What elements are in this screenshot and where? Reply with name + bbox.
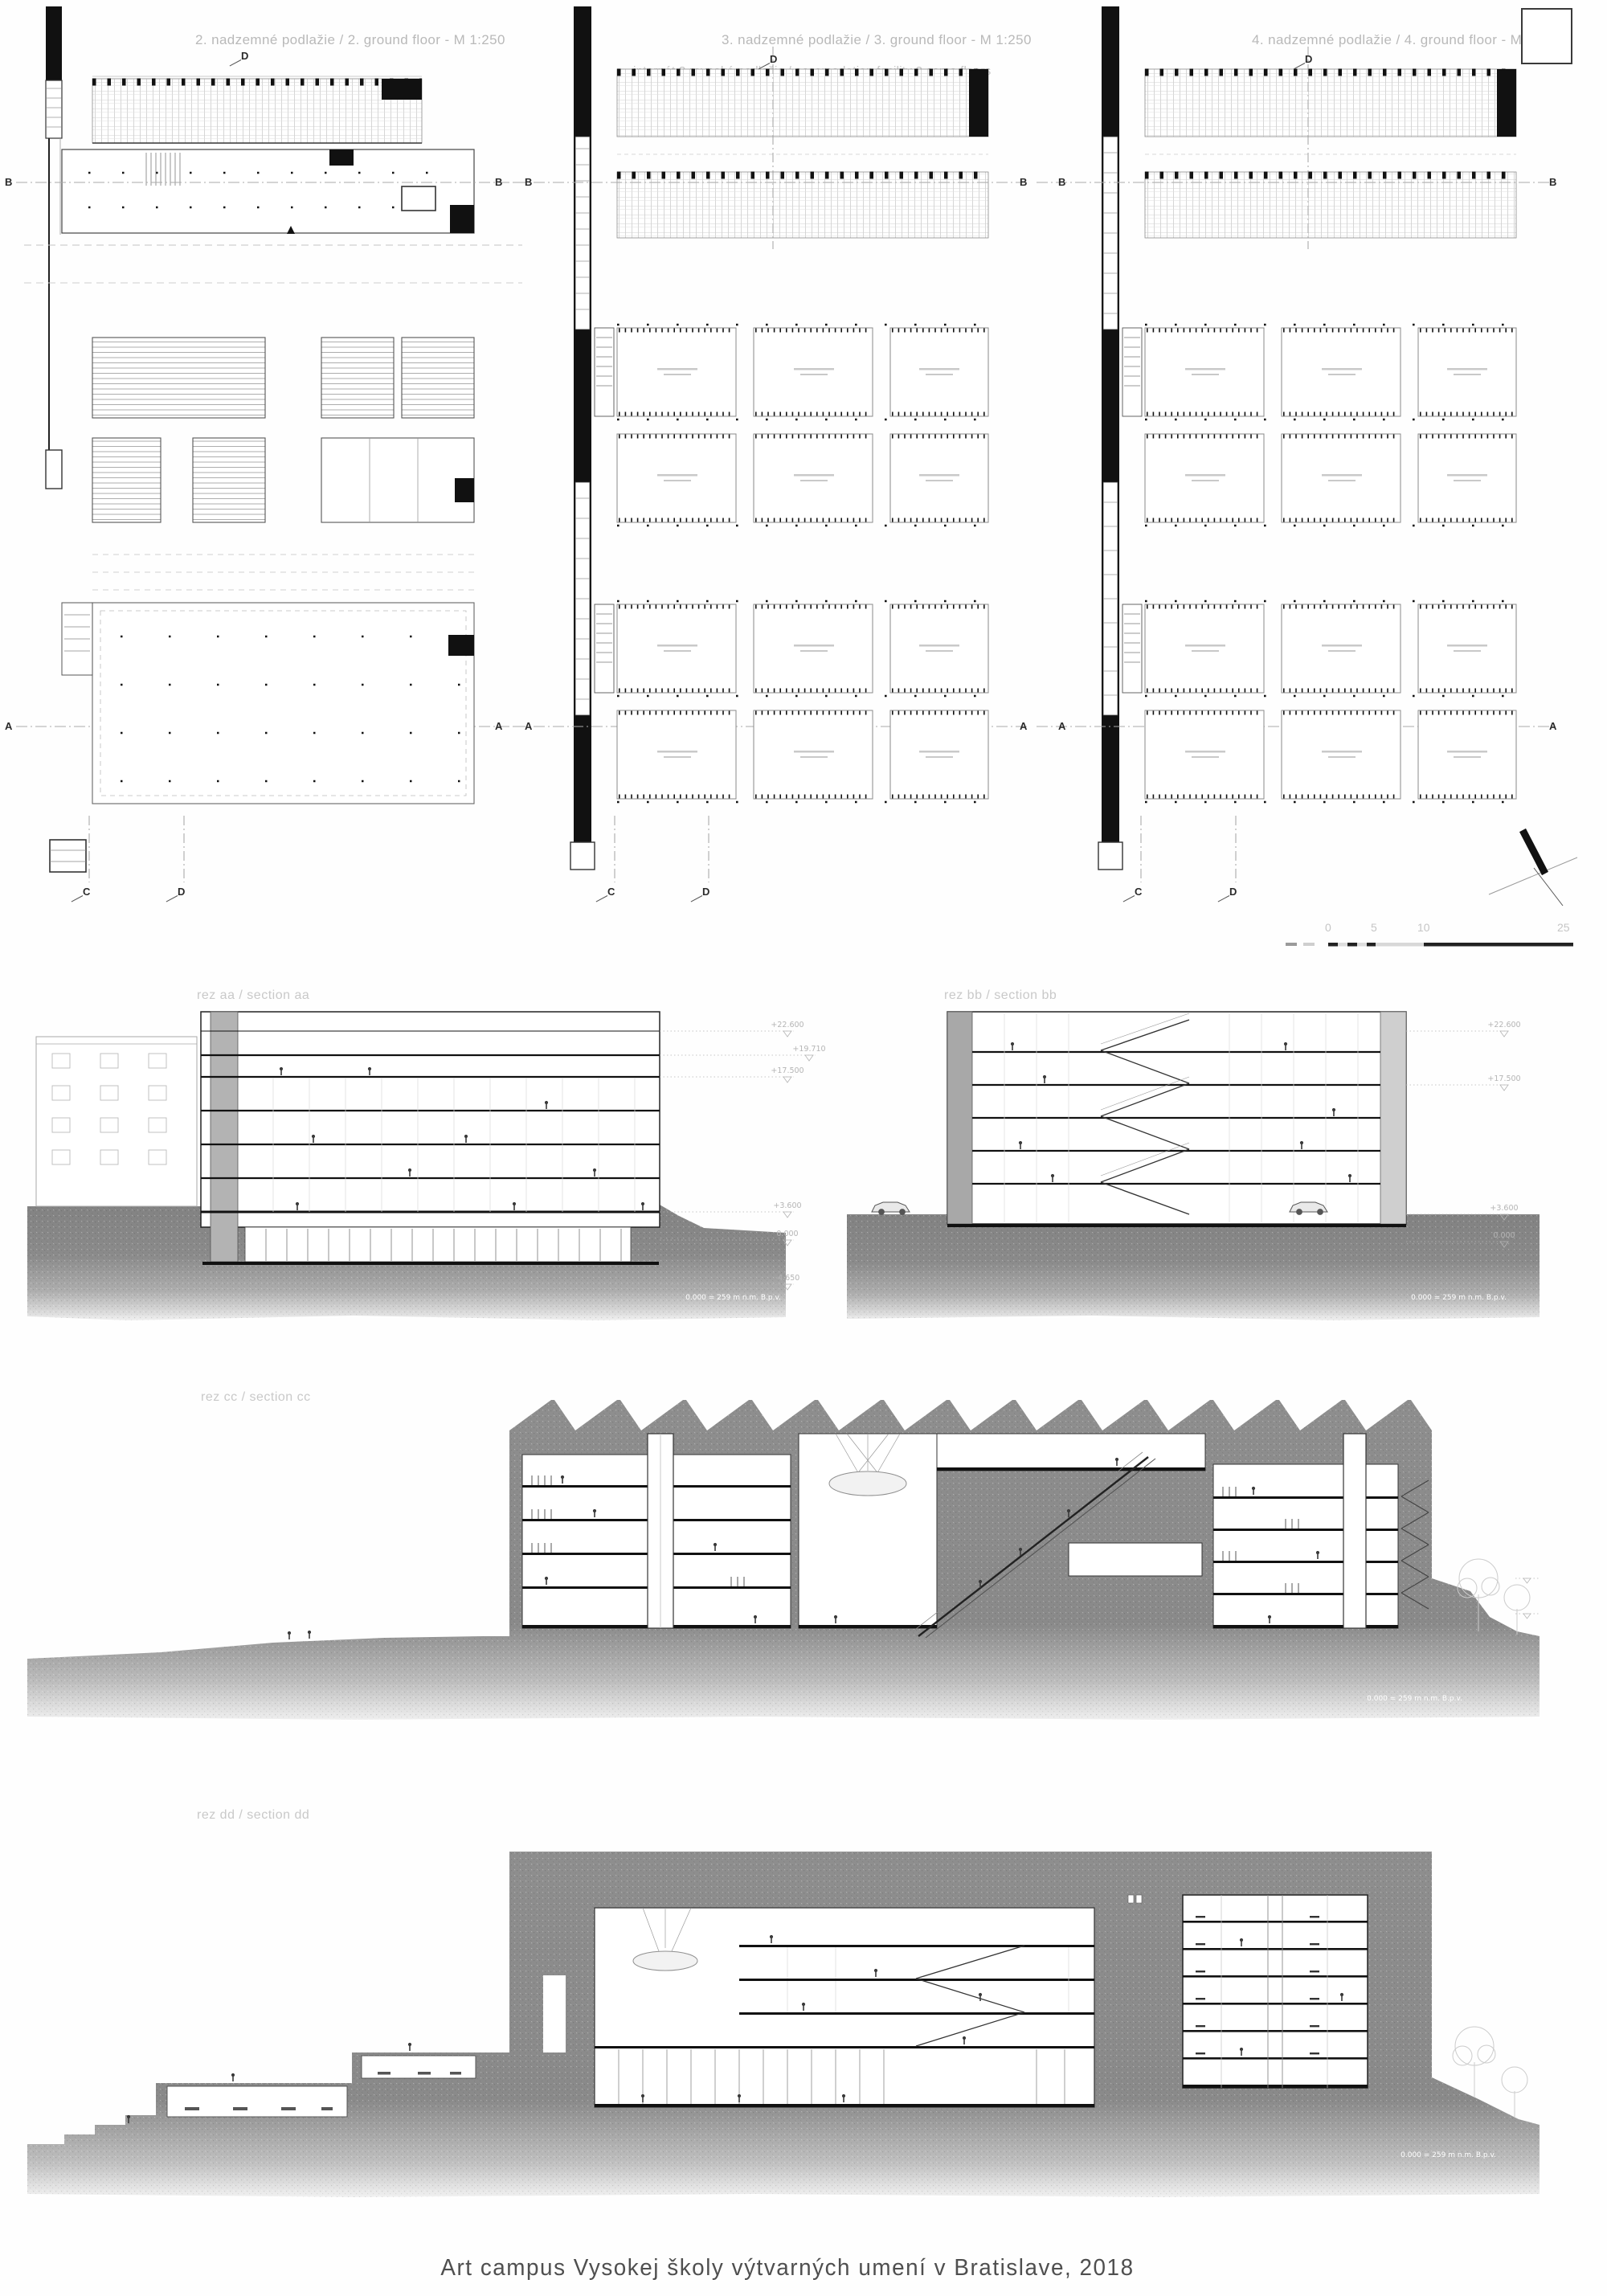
section-bb-building (947, 1012, 1406, 1227)
svg-text:+17.500: +17.500 (1487, 1074, 1520, 1083)
cc-hall (1069, 1543, 1202, 1576)
section-marker-b: B (1020, 176, 1027, 188)
section-marker-a: A (5, 720, 12, 732)
section-marker-b: B (525, 176, 532, 188)
section-marker-b: B (1549, 176, 1556, 188)
section-dd-drawing: 0.000 = 259 m n.m. B.p.v. (32, 1840, 1543, 2226)
cut-marker-d: D (241, 50, 248, 62)
svg-text:0.000: 0.000 (1493, 1231, 1515, 1240)
section-marker-b: B (495, 176, 502, 188)
datum-note: 0.000 = 259 m n.m. B.p.v. (1411, 1294, 1507, 1302)
board-caption: Art campus Vysokej školy výtvarných umen… (31, 2255, 1544, 2282)
dd-door-opening (543, 1975, 566, 2052)
plan4-studio-blocks (1122, 325, 1516, 802)
svg-text:+3.600: +3.600 (773, 1201, 801, 1210)
svg-text:+22.600: +22.600 (1487, 1021, 1520, 1029)
plan4-left-bar (1098, 6, 1122, 870)
datum-note: 0.000 = 259 m n.m. B.p.v. (1367, 1695, 1462, 1703)
cut-marker-c: C (607, 886, 615, 898)
plan2-hall (62, 149, 474, 234)
section-aa-drawing: +22.600 +19.710 +17.500 +3.600 0.000 -4.… (32, 1001, 836, 1338)
plan2-big-hall (62, 603, 474, 804)
scalebar-label-5: 5 (1371, 921, 1377, 934)
svg-text:+17.500: +17.500 (771, 1066, 803, 1075)
section-marker-a: A (1058, 720, 1065, 732)
existing-building-elevation (36, 1037, 197, 1206)
svg-text:+3.600: +3.600 (1490, 1204, 1518, 1213)
north-arrow (1482, 824, 1603, 912)
datum-note: 0.000 = 259 m n.m. B.p.v. (685, 1294, 781, 1302)
cut-marker-d: D (770, 53, 777, 65)
datum-note: 0.000 = 259 m n.m. B.p.v. (1401, 2151, 1496, 2159)
cut-marker-d: D (178, 886, 185, 898)
elevation-ticks (1515, 1578, 1540, 1619)
section-marker-a: A (1549, 720, 1556, 732)
scalebar-label-25: 25 (1557, 921, 1570, 934)
svg-text:+22.600: +22.600 (771, 1021, 803, 1029)
section-marker-b: B (1058, 176, 1065, 188)
section-aa-building (201, 1012, 660, 1265)
plan-3nf-drawing (522, 0, 1037, 900)
dd-center-interior (595, 1908, 1094, 2107)
scalebar-label-10: 10 (1417, 921, 1430, 934)
svg-text:0.000: 0.000 (776, 1230, 798, 1238)
section-marker-a: A (495, 720, 502, 732)
scale-bar (1286, 940, 1583, 950)
plan2-auditoriums (92, 338, 474, 522)
cut-marker-d: D (702, 886, 709, 898)
section-dd-label: rez dd / section dd (197, 1808, 309, 1823)
cc-atrium (799, 1434, 937, 1628)
plan2-left-bar (46, 6, 86, 872)
plan2-dorm-strip (92, 76, 422, 143)
section-marker-b: B (5, 176, 12, 188)
elevation-marks: +22.600 +17.500 +3.600 0.000 (1406, 1021, 1521, 1247)
plan-4nf-drawing (1045, 0, 1563, 900)
section-marker-a: A (525, 720, 532, 732)
plan3-left-bar (570, 6, 595, 870)
cut-marker-d: D (1229, 886, 1237, 898)
presentation-board: 2. nadzemné podlažie / 2. ground floor -… (0, 0, 1607, 2296)
cc-left-interior (522, 1434, 791, 1628)
section-bb-terrain (847, 1214, 1540, 1320)
dd-dorm-tower (1183, 1895, 1368, 2088)
cut-marker-c: C (1135, 886, 1142, 898)
plan3-studio-blocks (595, 325, 988, 802)
scalebar-label-0: 0 (1325, 921, 1331, 934)
plan-2nf-drawing (24, 0, 522, 900)
section-bb-drawing: +22.600 +17.500 +3.600 0.000 0.000 = 259… (852, 1001, 1559, 1338)
section-marker-a: A (1020, 720, 1027, 732)
section-cc-drawing: 0.000 = 259 m n.m. B.p.v. (32, 1381, 1543, 1726)
svg-text:+19.710: +19.710 (792, 1045, 825, 1054)
cut-marker-d: D (1305, 53, 1312, 65)
svg-text:-4.650: -4.650 (775, 1274, 800, 1283)
plan3-dorm-strips (617, 69, 988, 238)
cut-marker-c: C (83, 886, 90, 898)
plan4-dorm-strips (1145, 69, 1516, 238)
